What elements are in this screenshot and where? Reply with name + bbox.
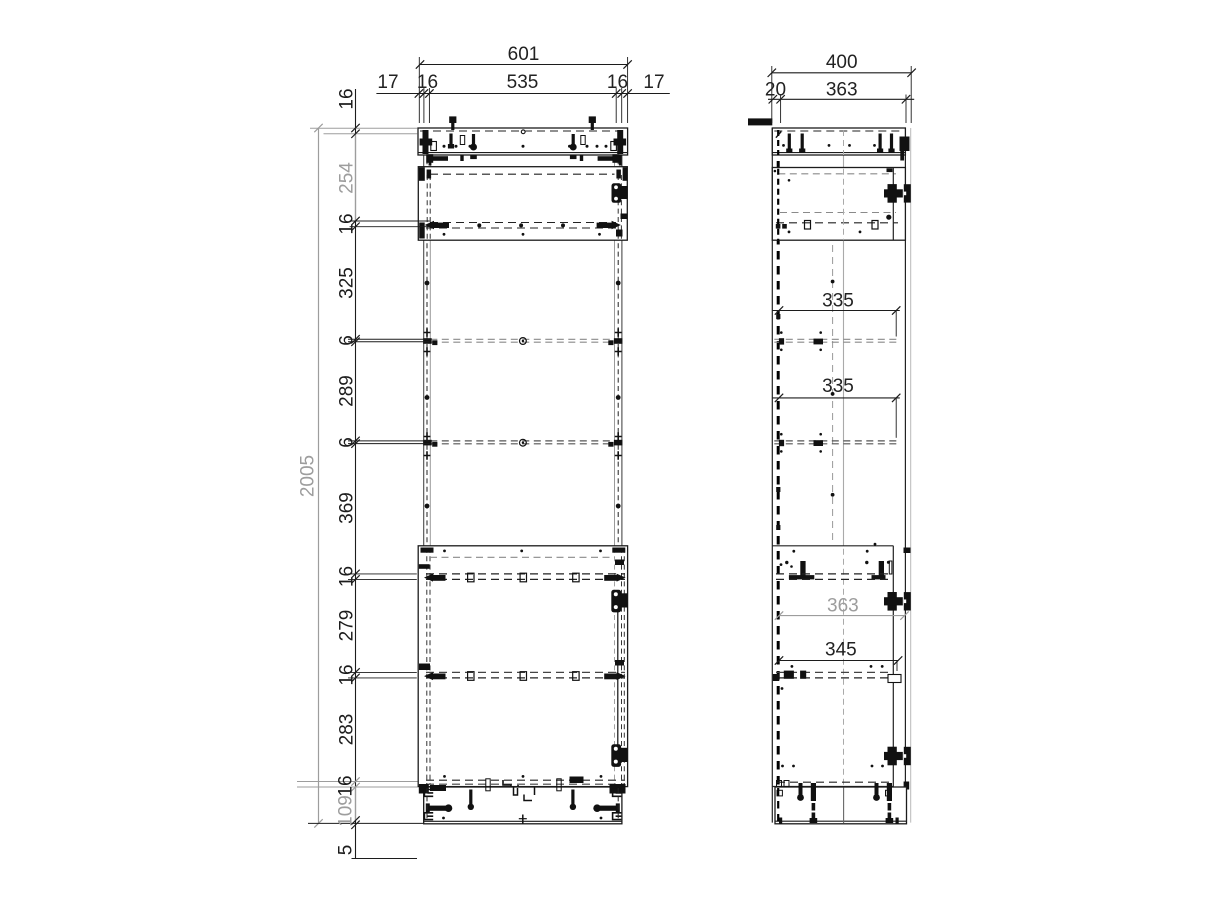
svg-text:335: 335 (822, 291, 854, 312)
svg-text:16: 16 (337, 88, 358, 109)
svg-text:16: 16 (417, 72, 438, 93)
svg-text:283: 283 (337, 714, 358, 746)
svg-text:20: 20 (765, 80, 786, 101)
svg-text:601: 601 (508, 44, 540, 65)
svg-text:16: 16 (337, 213, 358, 234)
svg-text:16: 16 (607, 72, 628, 93)
svg-text:369: 369 (337, 492, 358, 524)
svg-text:6: 6 (337, 335, 358, 346)
svg-text:345: 345 (825, 639, 857, 660)
svg-text:535: 535 (507, 72, 539, 93)
svg-text:335: 335 (822, 376, 854, 397)
svg-text:17: 17 (377, 72, 398, 93)
svg-text:289: 289 (337, 375, 358, 407)
svg-text:254: 254 (337, 162, 358, 194)
svg-text:363: 363 (827, 595, 859, 616)
svg-text:363: 363 (826, 80, 858, 101)
svg-text:16: 16 (337, 566, 358, 587)
svg-text:279: 279 (337, 610, 358, 642)
svg-text:400: 400 (826, 52, 858, 73)
svg-text:17: 17 (643, 72, 664, 93)
svg-text:109: 109 (336, 795, 357, 827)
svg-text:2005: 2005 (298, 455, 319, 497)
svg-text:5: 5 (336, 845, 357, 856)
svg-text:16: 16 (336, 775, 357, 796)
svg-text:325: 325 (337, 267, 358, 299)
svg-text:6: 6 (337, 437, 358, 448)
svg-text:16: 16 (337, 664, 358, 685)
